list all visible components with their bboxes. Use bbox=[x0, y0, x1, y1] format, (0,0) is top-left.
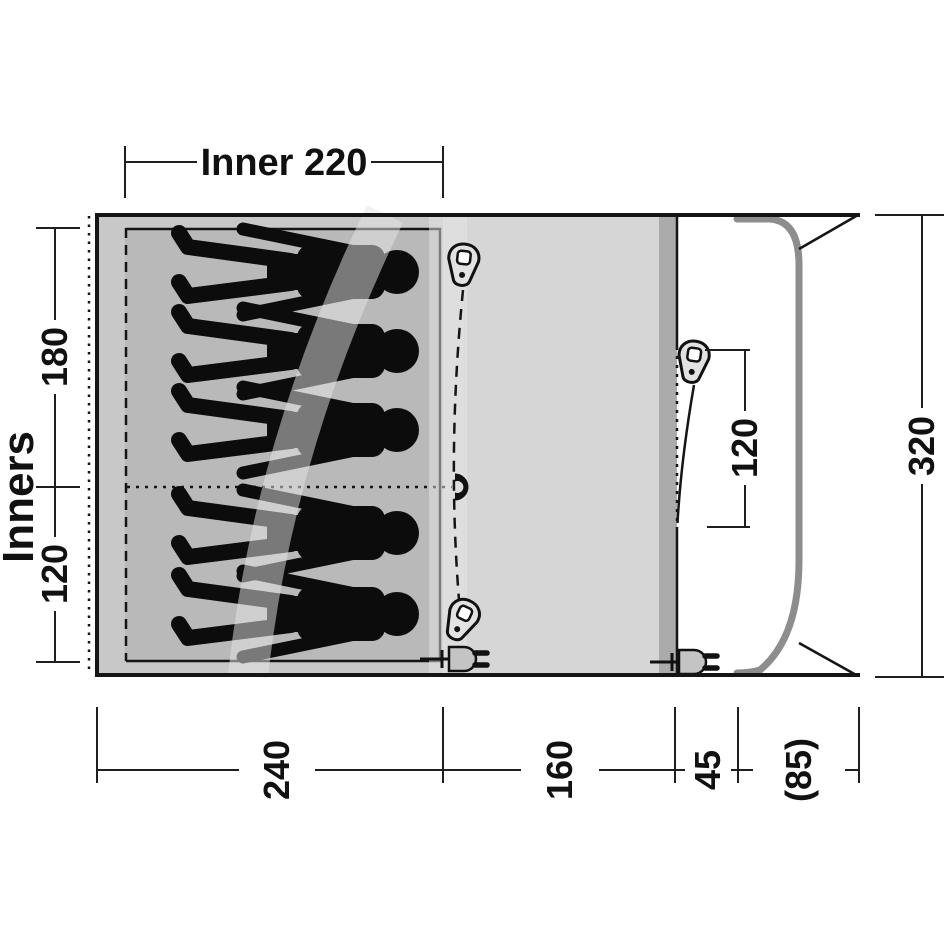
side-door-width-label: 120 bbox=[724, 418, 765, 478]
bottom-front-label: 45 bbox=[687, 750, 728, 790]
total-depth-label: 320 bbox=[901, 416, 942, 476]
bottom-canopy-label: (85) bbox=[778, 738, 819, 802]
bottom-living-label: 160 bbox=[539, 740, 580, 800]
inner-width-label: Inner 220 bbox=[201, 142, 368, 184]
front-wall-strip bbox=[659, 213, 677, 677]
inners-label: Inners bbox=[0, 431, 43, 563]
floorplan-svg: Inner 220 180 120 Inners 120 320 240 160… bbox=[0, 0, 944, 944]
bottom-bedroom-label: 240 bbox=[256, 740, 297, 800]
bedroom-depth-top-label: 180 bbox=[34, 327, 75, 387]
tent-floorplan-diagram: Inner 220 180 120 Inners 120 320 240 160… bbox=[0, 0, 944, 944]
